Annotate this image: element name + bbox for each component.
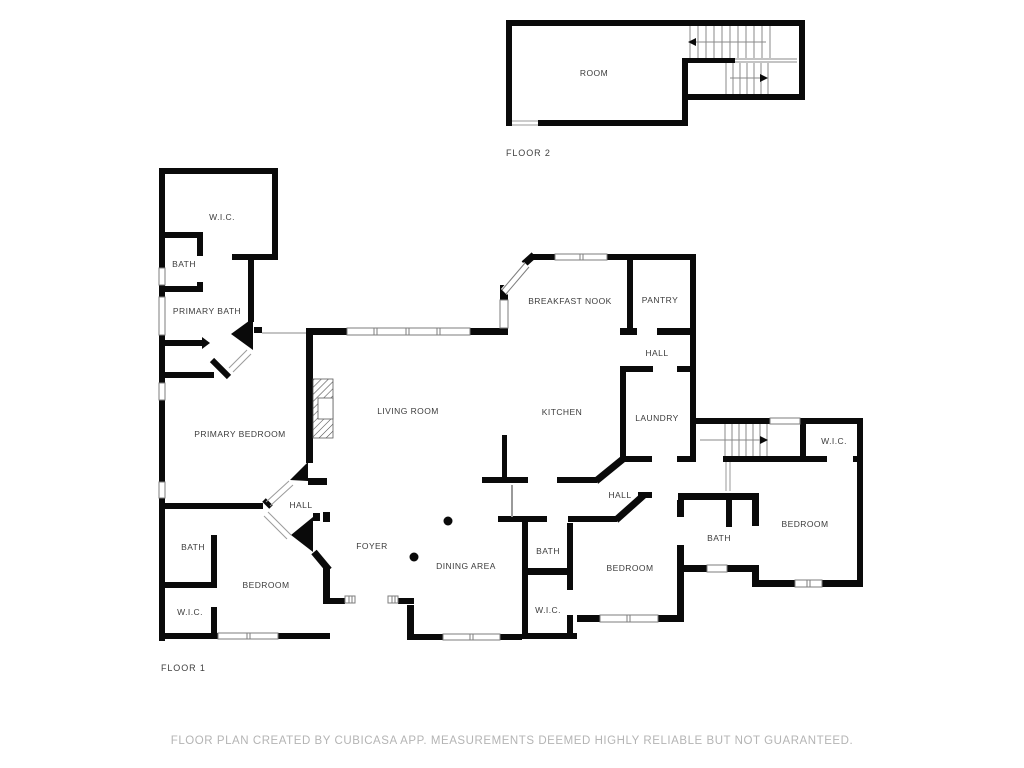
floor2-plan: ROOM FLOOR 2 (506, 20, 805, 158)
room-label-primary-bath: PRIMARY BATH (173, 306, 241, 316)
room-label-bath-left: BATH (181, 542, 205, 552)
floor1-walls (159, 168, 863, 641)
floor2-caption: FLOOR 2 (506, 148, 551, 158)
room-label-hall-pantry: HALL (645, 348, 668, 358)
floor1-stairs (700, 424, 768, 456)
room-label-wic-right: W.I.C. (821, 436, 847, 446)
room-label-hall-right: HALL (608, 490, 631, 500)
room-label-bedroom-right: BEDROOM (781, 519, 828, 529)
room-label-foyer: FOYER (356, 541, 388, 551)
room-label-bath-center: BATH (536, 546, 560, 556)
column-dot (410, 553, 419, 562)
column-dot (444, 517, 453, 526)
floor1-labels: W.I.C.BATHPRIMARY BATHBREAKFAST NOOKPANT… (172, 212, 847, 617)
room-label-primary-bedroom: PRIMARY BEDROOM (194, 429, 285, 439)
room-label-living-room: LIVING ROOM (377, 406, 439, 416)
stairs-up-arrow-left (688, 38, 696, 46)
floor2-walls (506, 20, 805, 126)
room-label-kitchen: KITCHEN (542, 407, 582, 417)
floor1-plan: W.I.C.BATHPRIMARY BATHBREAKFAST NOOKPANT… (159, 168, 863, 673)
room-label-bath-top-left: BATH (172, 259, 196, 269)
room-label-bedroom-left: BEDROOM (242, 580, 289, 590)
room-label-laundry: LAUNDRY (635, 413, 679, 423)
footer-disclaimer: FLOOR PLAN CREATED BY CUBICASA APP. MEAS… (0, 735, 1024, 747)
floor-plan-drawing: ROOM FLOOR 2 (0, 0, 1024, 768)
room-label-wic-top-left: W.I.C. (209, 212, 235, 222)
room-label-bath-right: BATH (707, 533, 731, 543)
floor1-caption: FLOOR 1 (161, 663, 206, 673)
floor2-labels: ROOM (580, 68, 608, 78)
room-label-room: ROOM (580, 68, 608, 78)
room-label-dining-area: DINING AREA (436, 561, 496, 571)
room-label-wic-left: W.I.C. (177, 607, 203, 617)
floor-plan-page: ROOM FLOOR 2 (0, 0, 1024, 768)
room-label-pantry: PANTRY (642, 295, 678, 305)
room-label-bedroom-center: BEDROOM (606, 563, 653, 573)
room-label-breakfast-nook: BREAKFAST NOOK (528, 296, 612, 306)
stairs-up-arrow-right (760, 74, 768, 82)
floor2-opening (512, 121, 538, 125)
room-label-hall-left: HALL (289, 500, 312, 510)
fireplace (313, 379, 333, 438)
room-label-wic-center: W.I.C. (535, 605, 561, 615)
